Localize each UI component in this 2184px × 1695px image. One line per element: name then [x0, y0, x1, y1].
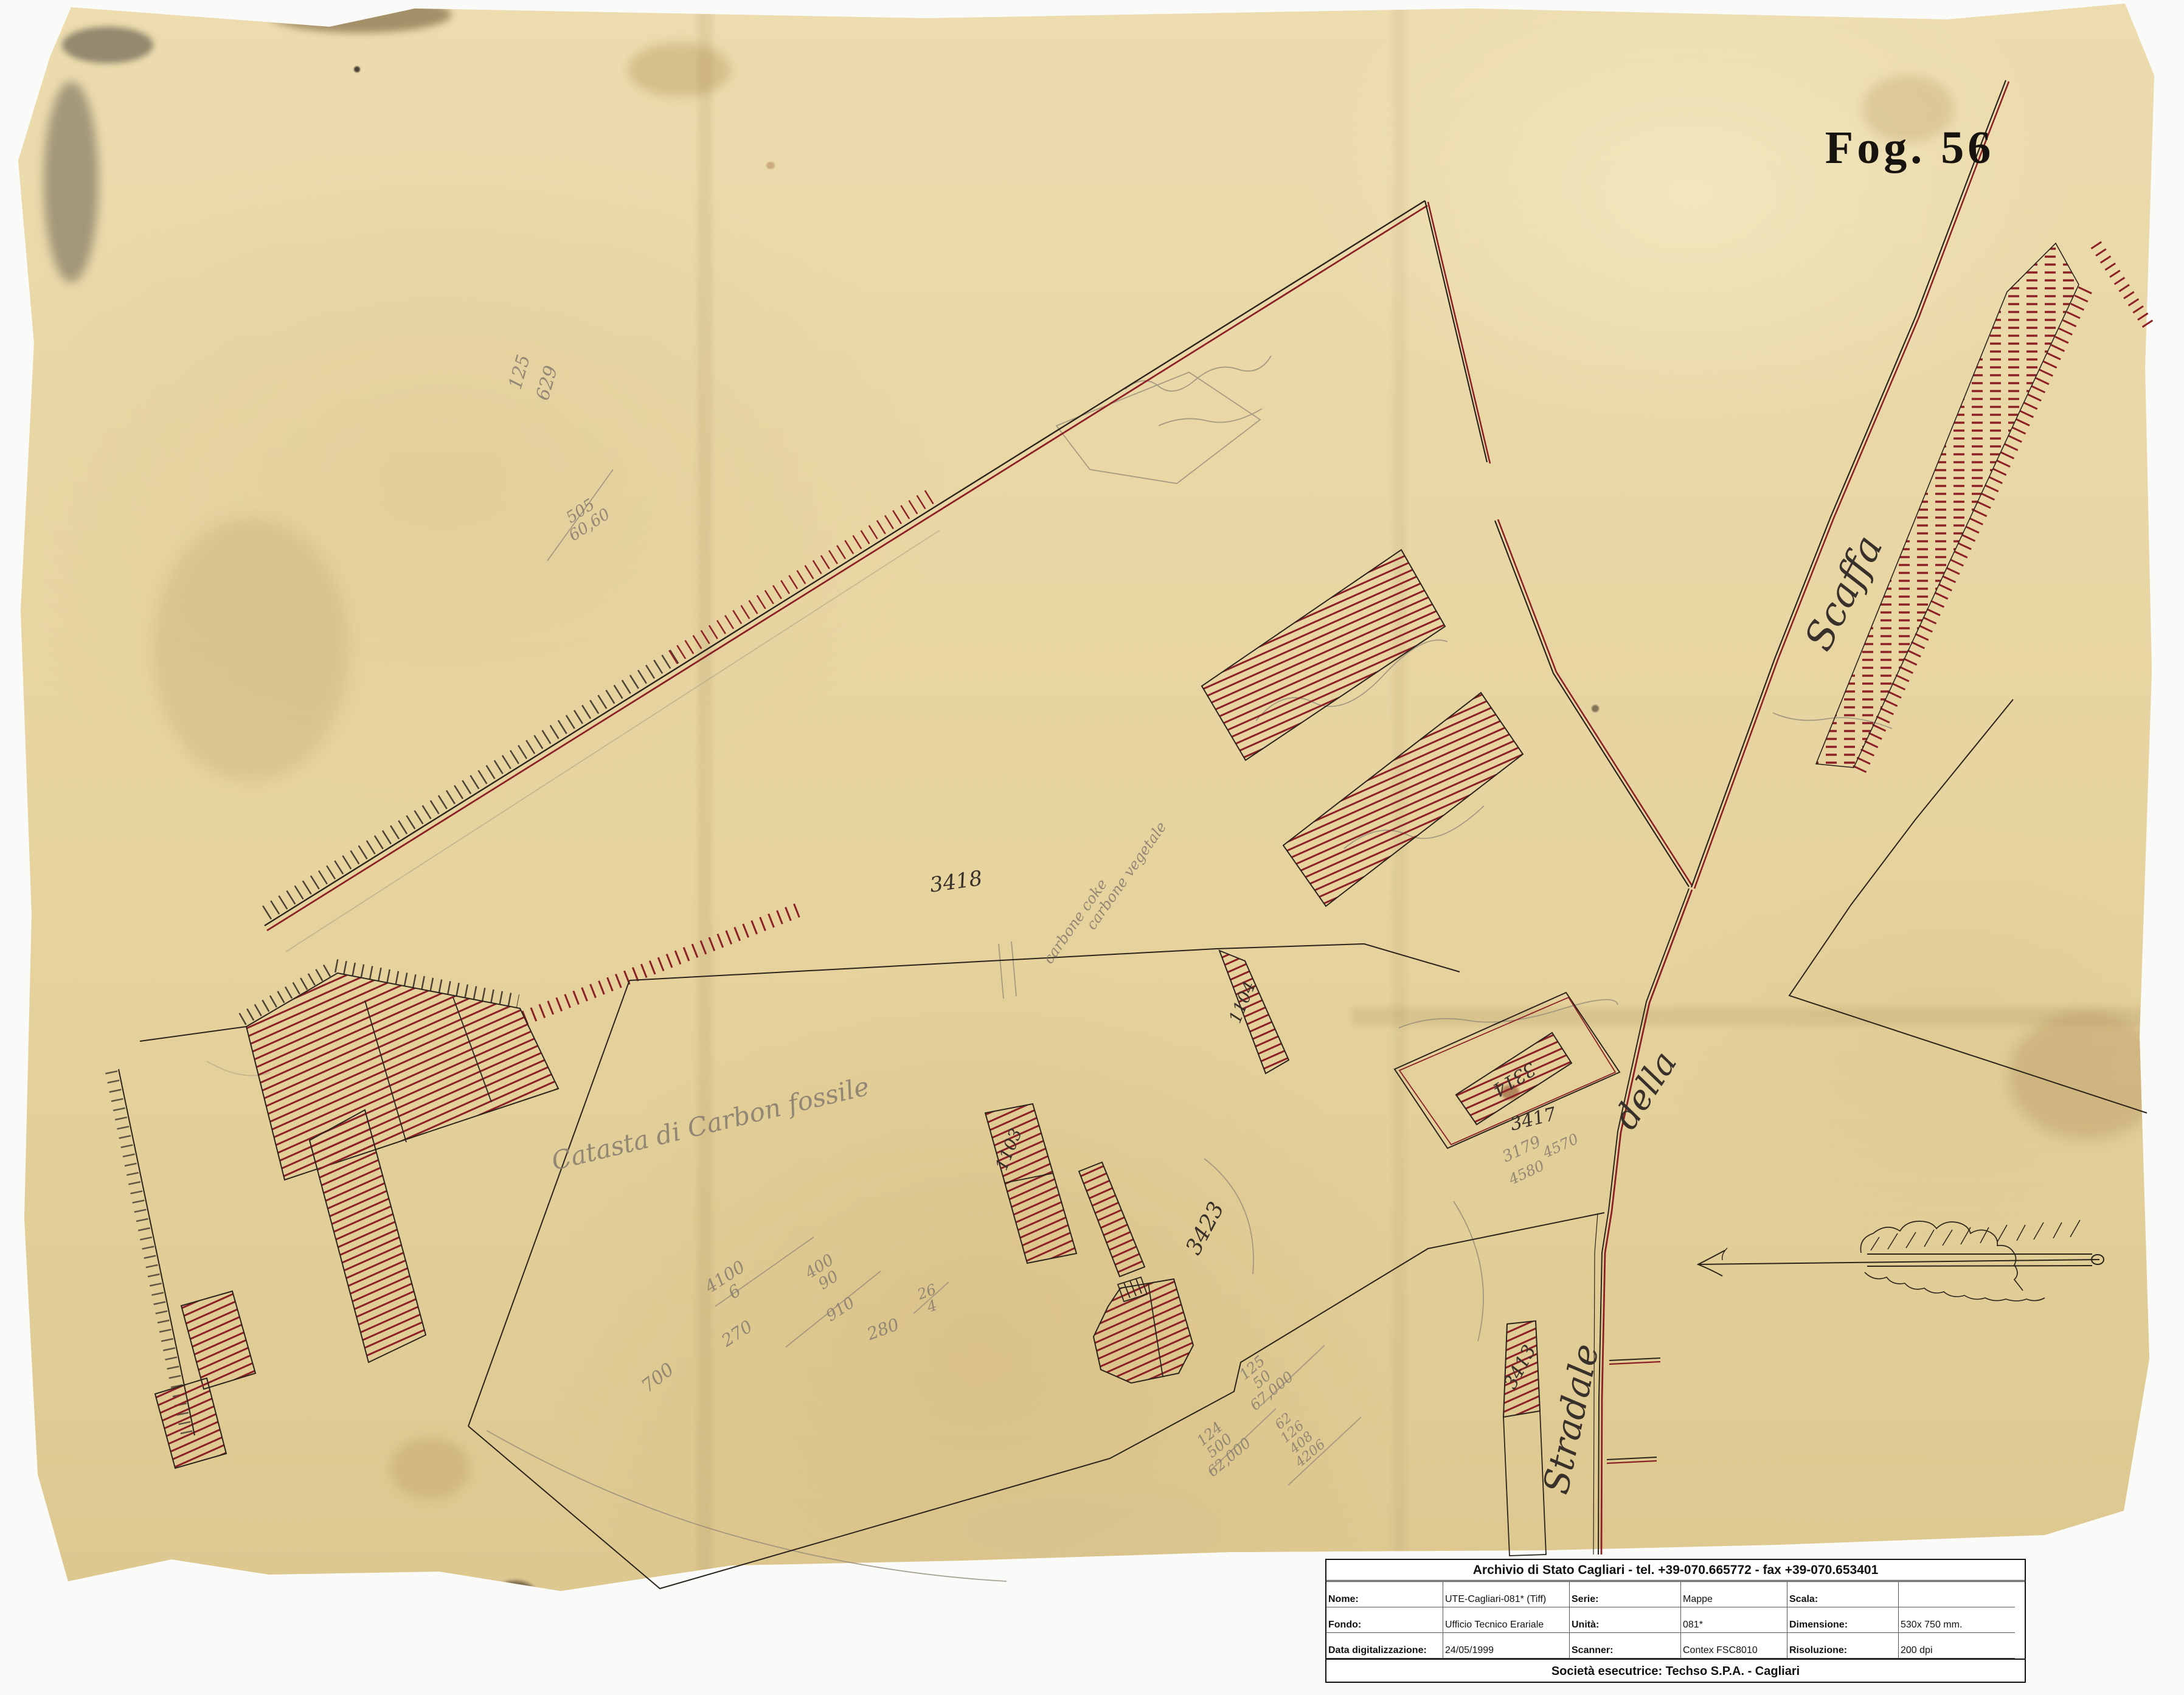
- field-value-serie: Mappe: [1681, 1582, 1787, 1607]
- field-label-data-digitalizzazione: Data digitalizzazione:: [1326, 1633, 1443, 1659]
- field-label-fondo: Fondo:: [1326, 1607, 1443, 1633]
- field-value-fondo: Ufficio Tecnico Erariale: [1443, 1607, 1570, 1633]
- field-value-data-digitalizzazione: 24/05/1999: [1443, 1633, 1570, 1659]
- field-value-dimensione: 530x 750 mm.: [1899, 1607, 2015, 1633]
- field-label-serie: Serie:: [1570, 1582, 1681, 1607]
- scan-page: Fog. 56 Scaffa della Stradale 3418 3423 …: [0, 0, 2184, 1695]
- fraction-bottom: 4: [925, 1298, 939, 1315]
- archive-header: Archivio di Stato Cagliari - tel. +39-07…: [1326, 1560, 2025, 1582]
- coal-yard-tail: [310, 1110, 426, 1362]
- building-1103: [985, 1104, 1076, 1263]
- building-notched: [1094, 1279, 1193, 1383]
- field-label-dimensione: Dimensione:: [1787, 1607, 1899, 1633]
- archive-metadata-table: Archivio di Stato Cagliari - tel. +39-07…: [1325, 1559, 2026, 1683]
- field-label-risoluzione: Risoluzione:: [1787, 1633, 1899, 1659]
- calc-bottom: 6: [726, 1282, 744, 1302]
- field-value-risoluzione: 200 dpi: [1899, 1633, 2015, 1659]
- hatched-buildings: [155, 243, 2079, 1468]
- field-label-scanner: Scanner:: [1570, 1633, 1681, 1659]
- building-lower: [1283, 693, 1523, 906]
- survey-arrow-sketch: [1698, 1220, 2104, 1301]
- field-value-scanner: Contex FSC8010: [1681, 1633, 1787, 1659]
- field-value-unita: 081*: [1681, 1607, 1787, 1633]
- coal-yard-band: [246, 973, 558, 1180]
- building-upper: [1202, 550, 1445, 760]
- field-label-unita: Unità:: [1570, 1607, 1681, 1633]
- field-value-nome: UTE-Cagliari-081* (Tiff): [1443, 1582, 1570, 1607]
- folio-number: Fog. 56: [1825, 125, 1994, 171]
- archive-footer: Società esecutrice: Techso S.P.A. - Cagl…: [1326, 1659, 2025, 1682]
- pencil-sketch-lines: [207, 356, 1892, 1581]
- field-label-scala: Scala:: [1787, 1582, 1899, 1607]
- river-bank-wedge: [1816, 243, 2079, 768]
- building-small-bar: [1079, 1162, 1145, 1277]
- coal-yard-plot-a: [181, 1291, 255, 1389]
- field-label-nome: Nome:: [1326, 1582, 1443, 1607]
- map-drawing: [0, 0, 2184, 1695]
- coal-yard-plot-b: [155, 1378, 226, 1468]
- archive-grid: Nome: UTE-Cagliari-081* (Tiff) Serie: Ma…: [1326, 1582, 2025, 1659]
- field-value-scala: [1899, 1582, 2015, 1607]
